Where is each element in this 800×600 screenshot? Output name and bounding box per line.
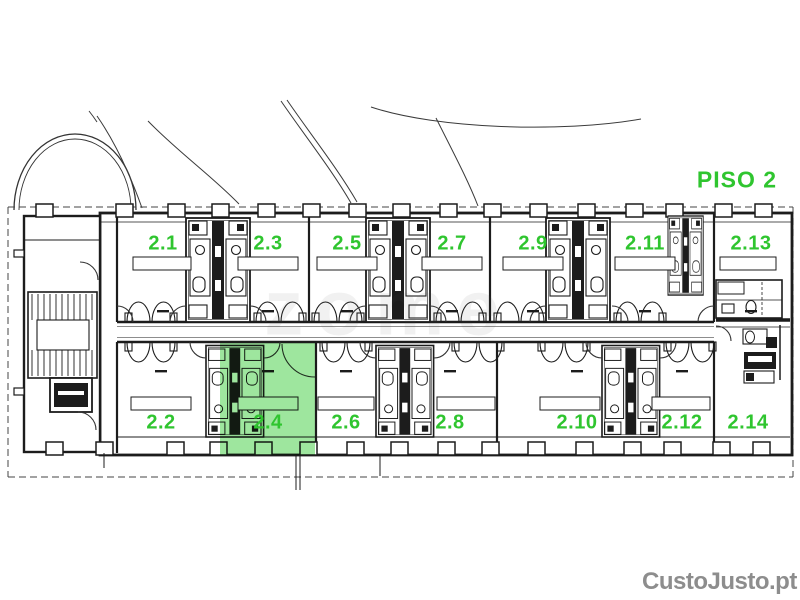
room-label-2-12: 2.12: [662, 412, 703, 435]
room-label-2-3: 2.3: [253, 233, 282, 256]
room-label-2-5: 2.5: [332, 233, 361, 256]
room-label-2-2: 2.2: [146, 412, 175, 435]
room-label-2-8: 2.8: [435, 412, 464, 435]
room-label-2-6: 2.6: [331, 412, 360, 435]
room-label-2-14: 2.14: [728, 412, 769, 435]
custojusto-watermark: CustoJusto.pt: [642, 568, 797, 596]
floor-title: PISO 2: [697, 167, 777, 194]
floor-plan-page: zome 2.12.32.52.72.92.112.132.22.42.62.8…: [0, 0, 800, 600]
room-labels-layer: 2.12.32.52.72.92.112.132.22.42.62.82.102…: [0, 0, 800, 600]
room-label-2-1: 2.1: [148, 233, 177, 256]
room-label-2-11: 2.11: [625, 233, 665, 256]
room-label-2-7: 2.7: [437, 233, 466, 256]
room-label-2-4: 2.4: [253, 412, 282, 435]
room-label-2-13: 2.13: [731, 233, 772, 256]
room-label-2-10: 2.10: [557, 412, 598, 435]
room-label-2-9: 2.9: [518, 233, 547, 256]
